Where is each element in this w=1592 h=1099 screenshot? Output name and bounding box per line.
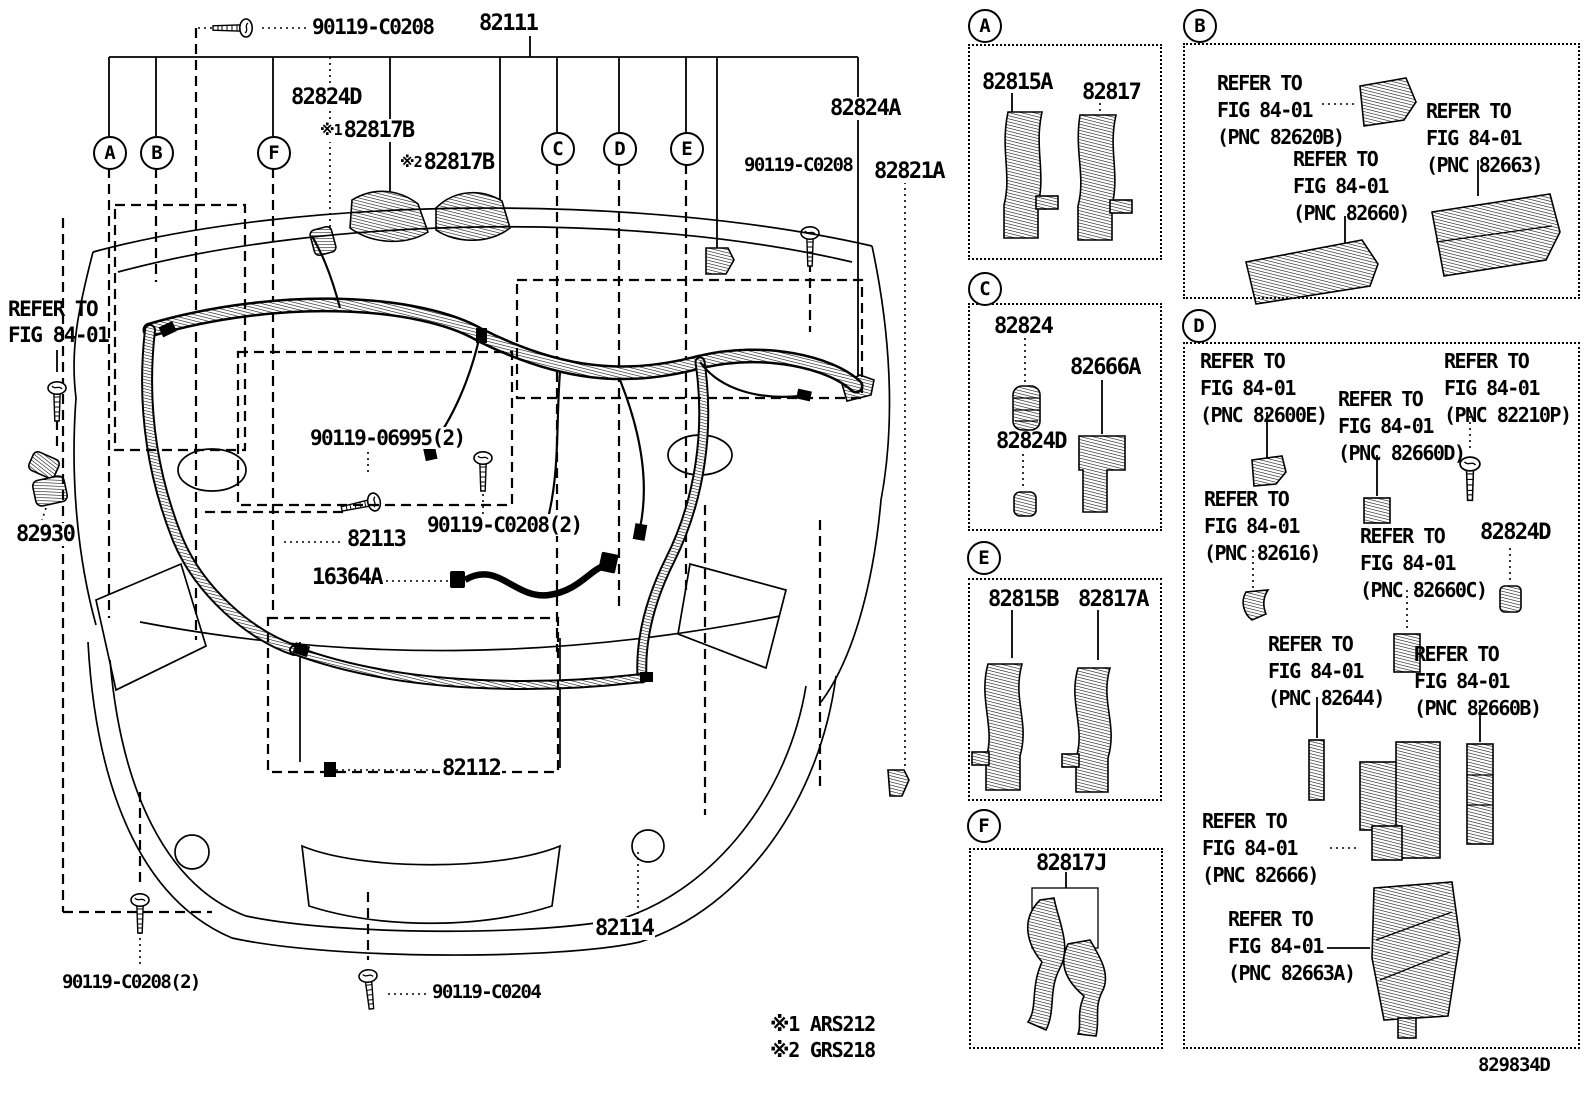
label-82824d-top: 82824D: [289, 86, 363, 109]
callout-f: F: [257, 136, 291, 170]
refer-82660-l1: REFER TO: [1293, 146, 1409, 173]
callout-c-letter: C: [552, 138, 563, 160]
label-82111: 82111: [477, 12, 539, 35]
label-82824: 82824: [992, 315, 1054, 338]
callout-a-letter: A: [104, 142, 115, 164]
label-82930: 82930: [14, 523, 76, 546]
callout-a: A: [93, 136, 127, 170]
harness-protector-parts: [309, 191, 734, 274]
label-82817b-2: ※282817B: [398, 151, 496, 174]
screw-icon-bottom-left: [131, 894, 149, 933]
refer-82210p-l1: REFER TO: [1444, 348, 1571, 375]
refer-pnc-82660: REFER TO FIG 84-01 (PNC 82660): [1293, 146, 1409, 227]
label-90119-06995: 90119-06995(2): [308, 427, 467, 449]
refer-82616-l1: REFER TO: [1204, 486, 1320, 513]
label-82824d-panel-c: 82824D: [994, 430, 1068, 453]
label-bolt-right: 90119-C0208: [742, 156, 854, 176]
note-ref-1: ※1: [320, 121, 342, 139]
label-82817j: 82817J: [1034, 852, 1108, 875]
footnote-ars212: ※1 ARS212: [770, 1012, 875, 1036]
refer-82644-l2: FIG 84-01: [1268, 658, 1384, 685]
label-90119-c0204: 90119-C0204: [430, 983, 542, 1003]
refer-82644-l3: (PNC 82644): [1268, 685, 1384, 712]
refer-82666-l2: FIG 84-01: [1202, 835, 1318, 862]
panel-e-letter: E: [967, 541, 1001, 575]
label-82821a: 82821A: [872, 160, 946, 183]
refer-left-line1: REFER TO: [8, 296, 108, 322]
callout-b: B: [140, 136, 174, 170]
label-16364a: 16364A: [310, 566, 384, 589]
refer-82620b-l1: REFER TO: [1217, 70, 1344, 97]
callout-d: D: [603, 132, 637, 166]
refer-82660b-l1: REFER TO: [1414, 641, 1541, 668]
refer-left-line2: FIG 84-01: [8, 322, 108, 348]
label-82114: 82114: [593, 917, 655, 940]
refer-82600e-l3: (PNC 82600E): [1200, 402, 1327, 429]
panel-c-letter: C: [968, 272, 1002, 306]
footnote-grs218: ※2 GRS218: [770, 1038, 875, 1062]
label-82815b: 82815B: [986, 588, 1060, 611]
refer-82660-l3: (PNC 82660): [1293, 200, 1409, 227]
refer-pnc-82210p: REFER TO FIG 84-01 (PNC 82210P): [1444, 348, 1571, 429]
panel-a-letter-text: A: [979, 15, 990, 37]
callout-f-letter: F: [268, 142, 279, 164]
label-82817a: 82817A: [1076, 588, 1150, 611]
refer-82663-l3: (PNC 82663): [1426, 152, 1542, 179]
refer-pnc-82660c: REFER TO FIG 84-01 (PNC 82660C): [1360, 523, 1487, 604]
refer-pnc-82644: REFER TO FIG 84-01 (PNC 82644): [1268, 631, 1384, 712]
label-82824a: 82824A: [828, 97, 902, 120]
refer-82666-l3: (PNC 82666): [1202, 862, 1318, 889]
refer-82600e-l2: FIG 84-01: [1200, 375, 1327, 402]
refer-82663-l1: REFER TO: [1426, 98, 1542, 125]
refer-82660-l2: FIG 84-01: [1293, 173, 1409, 200]
refer-pnc-82660b: REFER TO FIG 84-01 (PNC 82660B): [1414, 641, 1541, 722]
refer-fig-left: REFER TO FIG 84-01: [8, 296, 108, 348]
drawing-number: 829834D: [1478, 1054, 1550, 1076]
refer-82663-l2: FIG 84-01: [1426, 125, 1542, 152]
label-82815a: 82815A: [980, 71, 1054, 94]
refer-pnc-82600e: REFER TO FIG 84-01 (PNC 82600E): [1200, 348, 1327, 429]
refer-82210p-l2: FIG 84-01: [1444, 375, 1571, 402]
refer-pnc-82663a: REFER TO FIG 84-01 (PNC 82663A): [1228, 906, 1355, 987]
refer-82660c-l2: FIG 84-01: [1360, 550, 1487, 577]
label-bolt-bottom-left: 90119-C0208(2): [60, 973, 202, 993]
panel-f-letter: F: [967, 809, 1001, 843]
panel-c-letter-text: C: [979, 278, 990, 300]
screw-icon-bottom-center: [358, 969, 380, 1010]
callout-d-letter: D: [614, 138, 625, 160]
refer-82644-l1: REFER TO: [1268, 631, 1384, 658]
panel-b-letter: B: [1183, 9, 1217, 43]
screw-icon-center-2: [474, 452, 492, 491]
callout-b-letter: B: [151, 142, 162, 164]
panel-e-letter-text: E: [978, 547, 989, 569]
panel-f-box: [969, 848, 1163, 1049]
refer-82663a-l1: REFER TO: [1228, 906, 1355, 933]
panel-f-letter-text: F: [978, 815, 989, 837]
callout-e-letter: E: [681, 138, 692, 160]
refer-82660d-l3: (PNC 82660D): [1338, 440, 1465, 467]
refer-82600e-l1: REFER TO: [1200, 348, 1327, 375]
refer-82616-l2: FIG 84-01: [1204, 513, 1320, 540]
right-leaders: [810, 182, 909, 796]
refer-pnc-82666: REFER TO FIG 84-01 (PNC 82666): [1202, 808, 1318, 889]
label-82824d-panel-d: 82824D: [1478, 521, 1552, 544]
construction-boxes: [115, 205, 862, 815]
bolt-icon-top-left: [213, 19, 252, 37]
label-bolt-mid: 90119-C0208(2): [425, 514, 584, 536]
label-82666a: 82666A: [1068, 356, 1142, 379]
callout-c: C: [541, 132, 575, 166]
refer-pnc-82620b: REFER TO FIG 84-01 (PNC 82620B): [1217, 70, 1344, 151]
refer-82620b-l2: FIG 84-01: [1217, 97, 1344, 124]
note-ref-2: ※2: [400, 153, 422, 171]
label-82817b-2-num: 82817B: [424, 150, 494, 175]
label-82817b-1-num: 82817B: [344, 118, 414, 143]
refer-82210p-l3: (PNC 82210P): [1444, 402, 1571, 429]
refer-82660c-l1: REFER TO: [1360, 523, 1487, 550]
panel-a-letter: A: [968, 9, 1002, 43]
label-bolt-top-left: 90119-C0208: [310, 16, 435, 38]
refer-82660b-l2: FIG 84-01: [1414, 668, 1541, 695]
refer-82660b-l3: (PNC 82660B): [1414, 695, 1541, 722]
panel-d-letter: D: [1182, 309, 1216, 343]
parts-diagram-page: .s{stroke:#000;stroke-width:1.8;fill:non…: [0, 0, 1592, 1099]
refer-82660c-l3: (PNC 82660C): [1360, 577, 1487, 604]
label-82817: 82817: [1080, 81, 1142, 104]
refer-82616-l3: (PNC 82616): [1204, 540, 1320, 567]
refer-pnc-82616: REFER TO FIG 84-01 (PNC 82616): [1204, 486, 1320, 567]
refer-pnc-82663: REFER TO FIG 84-01 (PNC 82663): [1426, 98, 1542, 179]
label-82817b-1: ※182817B: [318, 119, 416, 142]
refer-82666-l1: REFER TO: [1202, 808, 1318, 835]
label-82112: 82112: [440, 757, 502, 780]
label-82113: 82113: [345, 528, 407, 551]
refer-82663a-l3: (PNC 82663A): [1228, 960, 1355, 987]
callout-e: E: [670, 132, 704, 166]
panel-b-letter-text: B: [1194, 15, 1205, 37]
refer-82663a-l2: FIG 84-01: [1228, 933, 1355, 960]
panel-d-letter-text: D: [1193, 315, 1204, 337]
